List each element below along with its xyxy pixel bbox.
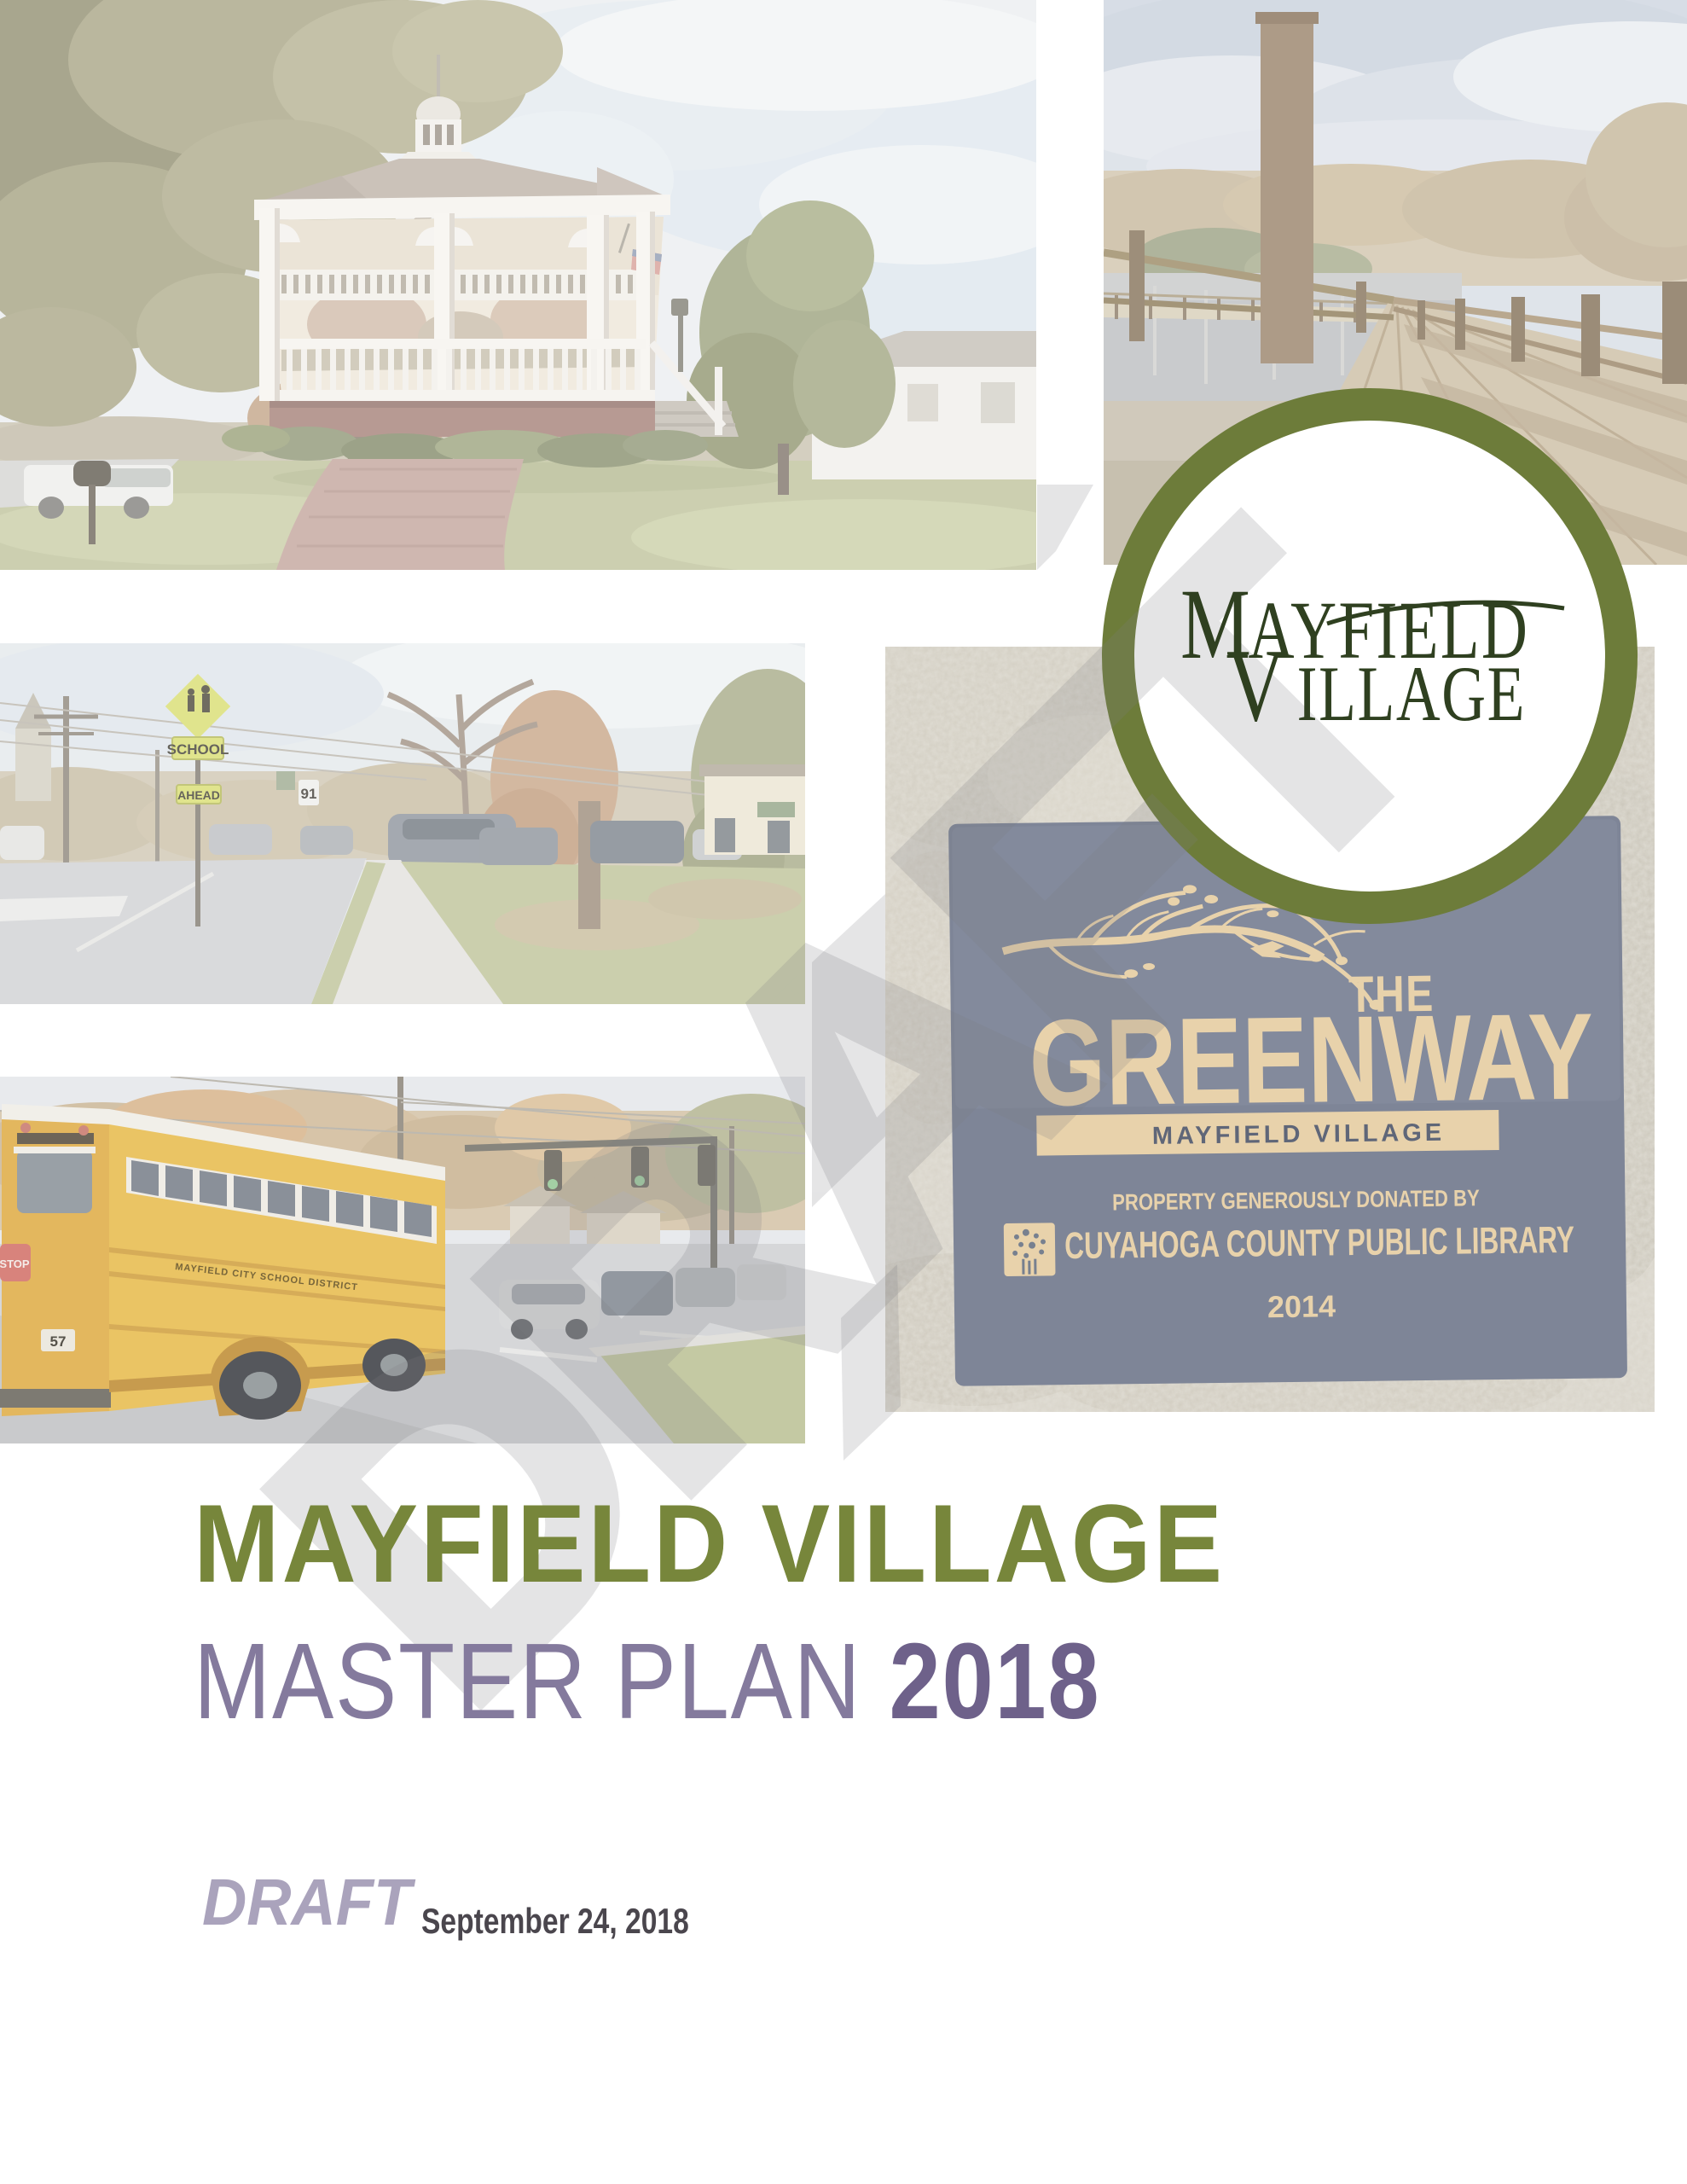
svg-text:V: V <box>1226 628 1285 743</box>
svg-text:ILLAGE: ILLAGE <box>1297 649 1526 737</box>
